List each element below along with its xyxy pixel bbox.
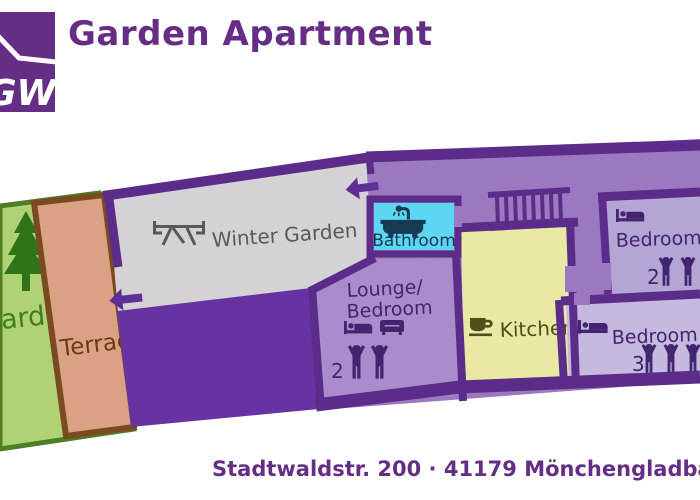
bathroom-label: Bathroom xyxy=(372,231,456,251)
bathroom-area: Bathroom xyxy=(372,203,456,251)
floor-plan-page: { "header": { "logo_text": "GW", "title"… xyxy=(0,0,700,500)
address: Stadtwaldstr. 200 · 41179 Mönchengladbac… xyxy=(212,457,700,481)
floor-plan: Garden Terrace Winter Garden Lounge/ Bed… xyxy=(0,0,700,500)
solid-purple-area xyxy=(117,288,319,427)
lounge-label-line2: Bedroom xyxy=(346,297,433,323)
bedroom-top-label: Bedroom xyxy=(615,227,700,252)
bedroom-bottom-capacity: 3 xyxy=(632,352,645,376)
lounge-capacity: 2 xyxy=(331,359,344,383)
bedroom-top-area: Bedroom 2 xyxy=(606,194,700,295)
bedroom-top-capacity: 2 xyxy=(647,265,660,289)
bedroom-bottom-area: Bedroom 3 xyxy=(566,296,700,382)
